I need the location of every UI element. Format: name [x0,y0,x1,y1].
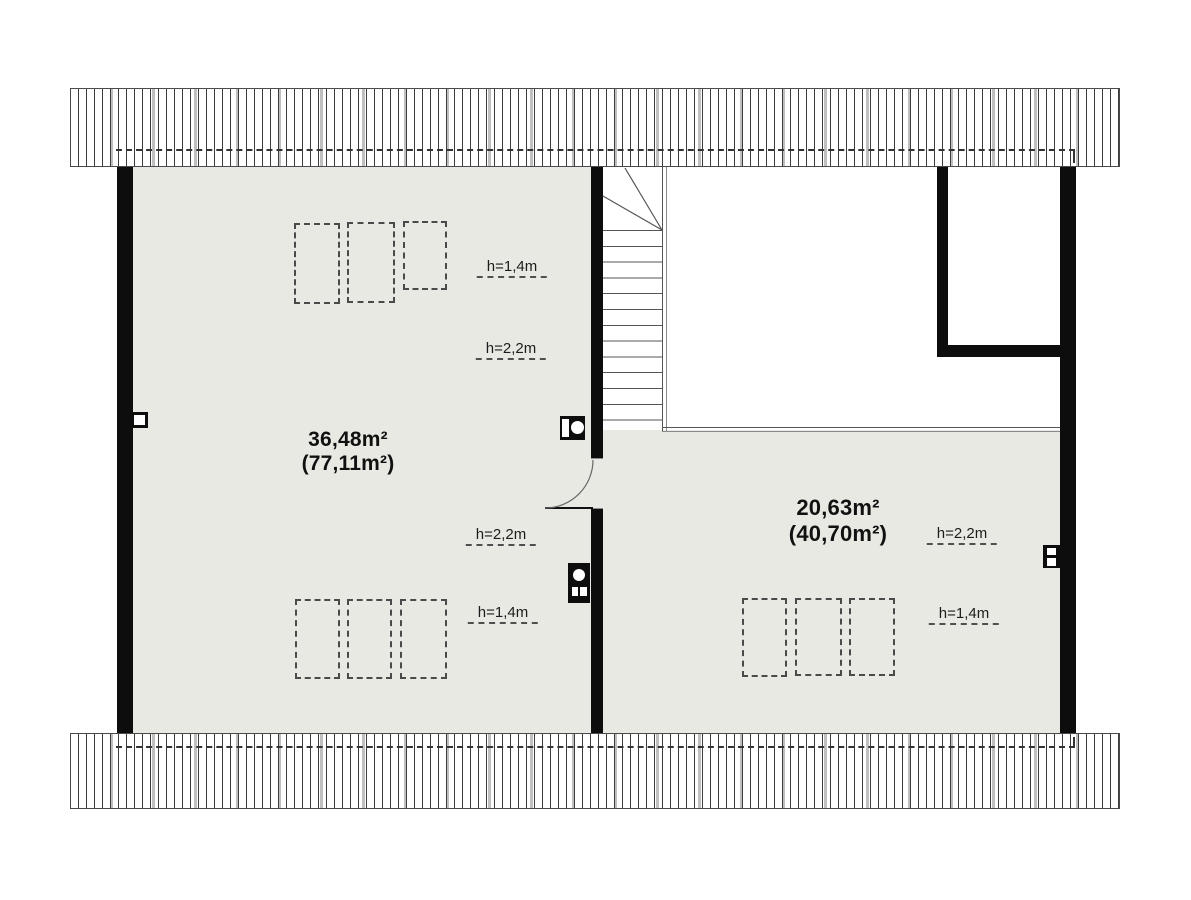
wall-right-exterior [1060,167,1076,733]
wall-middle-upper [591,167,603,459]
roof-eaves-top [70,88,1120,167]
wall-middle-lower [591,508,603,733]
roof-window-outline [400,599,447,679]
right-room-floor [591,430,1076,733]
flue-square-icon [572,587,578,596]
stair-treads [603,230,662,423]
roof-window-outline [849,598,895,676]
dashed-line-corner-top [1073,151,1075,163]
chimney-lower [568,563,590,603]
wall-vent-left [131,412,148,428]
roof-window-outline [294,223,340,304]
height-label: h=2,2m [476,341,546,360]
wall-top-right-horizontal [937,345,1060,357]
area-gross-value: (40,70m²) [789,521,887,547]
stair-void-edge-vertical-inner [666,167,667,432]
flue-rect-icon [562,419,569,437]
area-value: 20,63m² [789,495,887,521]
flue-circle-icon [573,569,585,581]
roof-window-outline [403,221,447,290]
door-leaf [545,507,593,509]
wall-top-right-vertical [937,167,948,357]
stair-winder-line [603,196,662,230]
height-label: h=2,2m [466,527,536,546]
roof-window-outline [795,598,842,676]
roof-window-outline [347,599,392,679]
roof-window-outline [742,598,787,677]
flue-circle-icon [571,421,584,434]
dashed-line-corner-bottom [1073,737,1075,746]
stair-winder-line [625,168,662,230]
area-gross-value: (77,11m²) [302,452,395,476]
wall-left-exterior [117,167,133,733]
flue-square-icon [580,587,587,596]
wall-vent-right [1043,545,1060,568]
wall-plane-dashed-line-bottom [116,746,1075,748]
roof-eaves-bottom [70,733,1120,809]
height-label: h=2,2m [927,526,997,545]
flue-square-icon [1047,548,1056,555]
roof-window-outline [295,599,340,679]
stair-void-edge-vertical [662,167,663,432]
void-edge-horizontal-inner [662,431,1060,432]
wall-plane-dashed-line-top [116,149,1075,151]
height-label: h=1,4m [477,259,547,278]
height-label: h=1,4m [468,605,538,624]
void-edge-horizontal [662,427,1060,428]
door-jamb-top [591,458,603,459]
flue-square-icon [1047,558,1056,566]
roof-window-outline [347,222,395,303]
right-room-area-label: 20,63m² (40,70m²) [789,495,887,547]
left-room-area-label: 36,48m² (77,11m²) [302,428,395,476]
height-label: h=1,4m [929,606,999,625]
area-value: 36,48m² [302,428,395,452]
chimney-upper [560,416,585,440]
floor-plan: 36,48m² (77,11m²) 20,63m² (40,70m²) h=1,… [0,0,1191,900]
